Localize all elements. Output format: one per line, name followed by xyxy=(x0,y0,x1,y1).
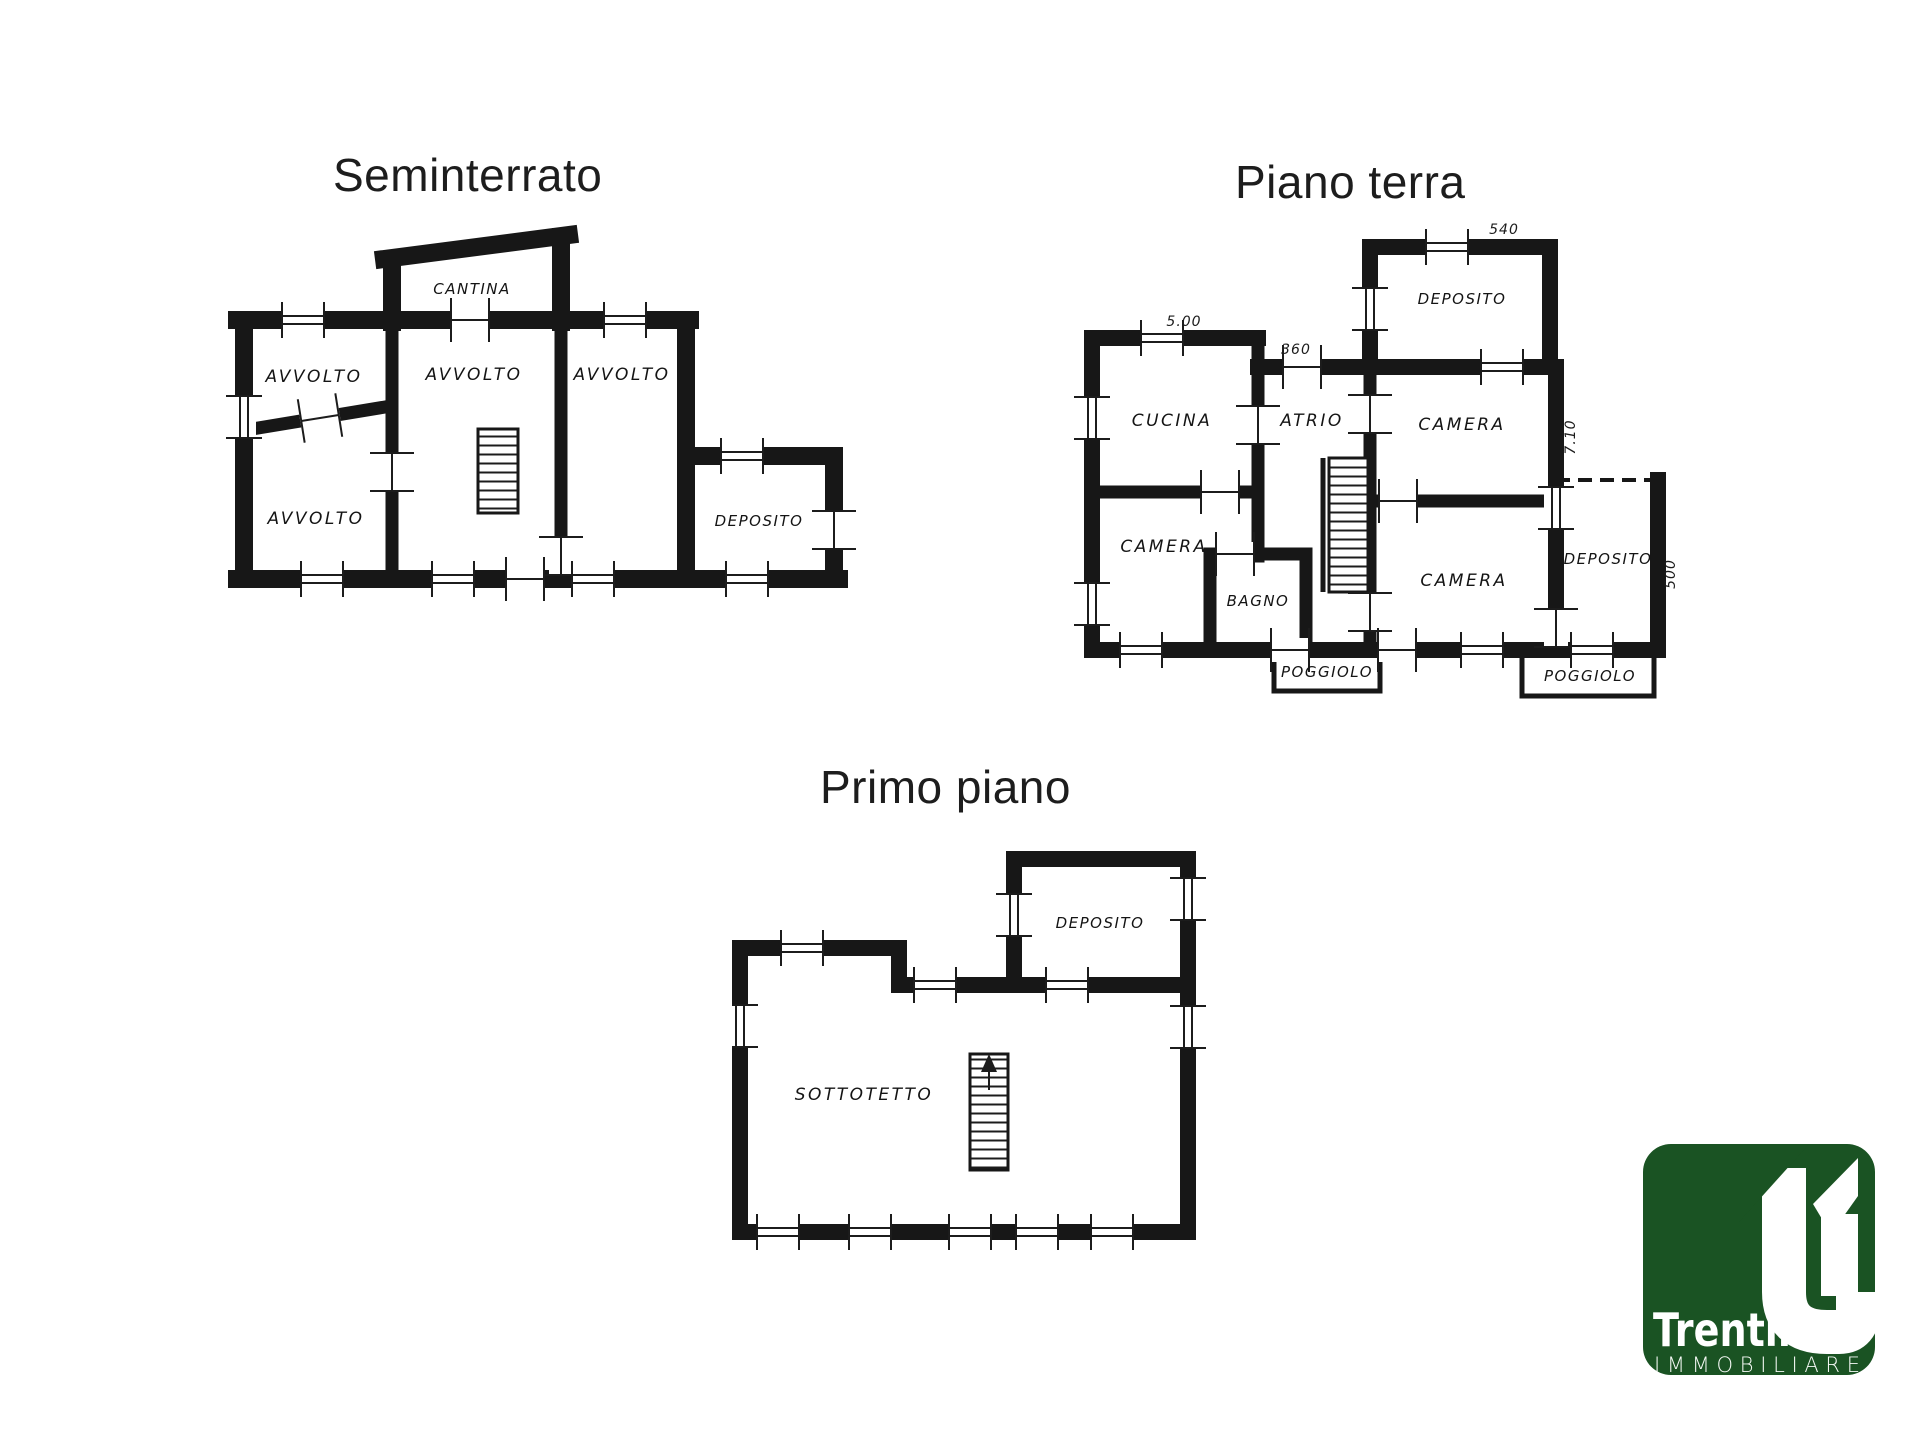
room-label-camera-top: CAMERA xyxy=(1418,415,1505,435)
logo-brand-text: Trentin xyxy=(1653,1303,1805,1357)
window-marker xyxy=(913,967,957,1003)
window-marker xyxy=(1570,632,1614,668)
room-label-sottotetto: SOTTOTETTO xyxy=(795,1085,934,1105)
window-marker xyxy=(1074,582,1110,626)
room-label-atrio: ATRIO xyxy=(1279,411,1343,431)
trentin-immobiliare-logo: Trentin IMMOBILIARE xyxy=(1643,1144,1878,1384)
window-marker xyxy=(571,561,615,597)
door-marker xyxy=(450,298,490,342)
window-marker xyxy=(1170,1005,1206,1049)
window-marker xyxy=(1119,632,1163,668)
room-label-poggiolo-center: POGGIOLO xyxy=(1281,663,1373,681)
door-marker xyxy=(297,393,343,443)
dim-deposito-right: 500 xyxy=(1663,559,1679,589)
window-marker xyxy=(1460,632,1504,668)
piano-terra-staircase xyxy=(1329,458,1368,592)
title-piano-terra: Piano terra xyxy=(1235,155,1466,209)
window-marker xyxy=(1090,1214,1134,1250)
seminterrato-staircase xyxy=(478,429,518,513)
window-marker xyxy=(1170,877,1206,921)
window-marker xyxy=(725,561,769,597)
piano-terra-floor-plan: 5.00 360 540 7.10 500 CUCINA ATRIO CAMER… xyxy=(1072,222,1702,722)
title-seminterrato: Seminterrato xyxy=(333,148,602,202)
dim-cucina-top: 5.00 xyxy=(1166,314,1201,330)
dim-atrio: 360 xyxy=(1281,342,1311,358)
room-label-deposito: DEPOSITO xyxy=(1056,914,1145,932)
window-marker xyxy=(300,561,344,597)
seminterrato-floor-plan: CANTINA AVVOLTO AVVOLTO AVVOLTO AVVOLTO … xyxy=(225,210,865,660)
window-marker xyxy=(848,1214,892,1250)
window-marker xyxy=(1074,396,1110,440)
room-label-deposito-top: DEPOSITO xyxy=(1418,290,1507,308)
window-marker xyxy=(431,561,475,597)
window-marker xyxy=(996,893,1032,937)
room-label-camera-left: CAMERA xyxy=(1120,537,1207,557)
window-marker xyxy=(948,1214,992,1250)
window-marker xyxy=(732,1004,758,1048)
window-marker xyxy=(281,302,325,338)
page-background: Seminterrato Piano terra Primo piano xyxy=(0,0,1920,1440)
window-marker xyxy=(603,302,647,338)
window-marker xyxy=(1425,229,1469,265)
room-label-poggiolo-right: POGGIOLO xyxy=(1544,667,1636,685)
room-label-cantina: CANTINA xyxy=(433,280,511,298)
door-marker xyxy=(370,452,414,492)
piano-terra-windows xyxy=(1074,229,1614,672)
door-marker xyxy=(1200,470,1240,514)
window-marker xyxy=(756,1214,800,1250)
door-marker xyxy=(1377,628,1417,672)
dim-deposito-top: 540 xyxy=(1489,222,1519,238)
room-label-deposito: DEPOSITO xyxy=(715,512,804,530)
window-marker xyxy=(1015,1214,1059,1250)
room-label-avvolto-4: AVVOLTO xyxy=(266,509,364,529)
room-label-camera-bottom: CAMERA xyxy=(1420,571,1507,591)
room-label-deposito-right: DEPOSITO xyxy=(1564,550,1653,568)
door-marker xyxy=(505,557,545,601)
door-marker xyxy=(1236,405,1280,445)
door-marker xyxy=(1348,394,1392,434)
room-label-cucina: CUCINA xyxy=(1132,411,1213,431)
door-marker xyxy=(1348,592,1392,632)
title-primo-piano: Primo piano xyxy=(820,760,1071,814)
window-marker xyxy=(1480,349,1524,385)
room-label-avvolto-3: AVVOLTO xyxy=(572,365,670,385)
primo-piano-floor-plan: DEPOSITO SOTTOTETTO xyxy=(732,842,1232,1312)
seminterrato-windows xyxy=(226,298,856,601)
primo-piano-staircase xyxy=(970,1054,1008,1170)
dim-right-side: 7.10 xyxy=(1563,419,1579,454)
door-marker xyxy=(1215,532,1255,576)
room-label-avvolto-1: AVVOLTO xyxy=(264,367,362,387)
window-marker xyxy=(1045,967,1089,1003)
window-marker xyxy=(780,930,824,966)
door-marker xyxy=(812,510,856,550)
room-label-bagno: BAGNO xyxy=(1227,592,1290,610)
window-marker xyxy=(720,438,764,474)
door-marker xyxy=(1378,479,1418,523)
window-marker xyxy=(1352,287,1388,331)
room-label-avvolto-2: AVVOLTO xyxy=(424,365,522,385)
window-marker xyxy=(1538,486,1574,530)
